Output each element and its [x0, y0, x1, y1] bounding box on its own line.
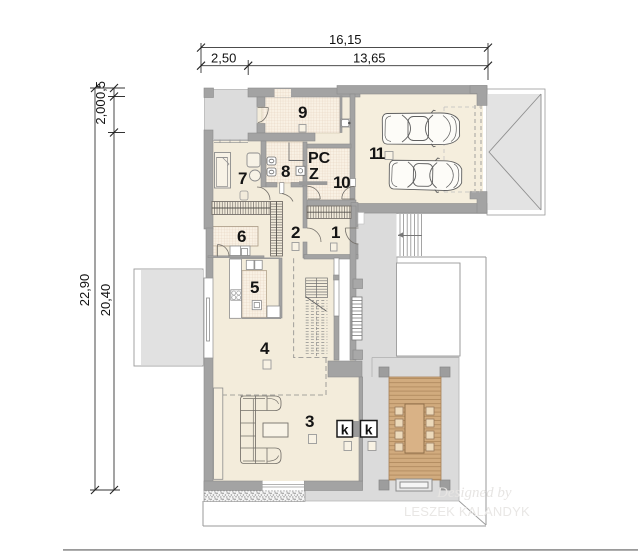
svg-text:k: k — [365, 422, 373, 438]
svg-text:3: 3 — [305, 412, 314, 431]
svg-text:10: 10 — [333, 173, 350, 192]
svg-text:2: 2 — [291, 223, 300, 242]
svg-text:Z: Z — [309, 166, 319, 183]
svg-text:1: 1 — [331, 223, 340, 242]
svg-text:2,50: 2,50 — [211, 51, 236, 66]
svg-text:16,15: 16,15 — [329, 32, 362, 47]
svg-text:13,65: 13,65 — [353, 51, 386, 66]
svg-text:4: 4 — [260, 339, 270, 358]
svg-text:9: 9 — [298, 103, 307, 122]
svg-text:22,90: 22,90 — [77, 274, 92, 307]
svg-text:LESZEK KALANDYK: LESZEK KALANDYK — [404, 504, 530, 519]
svg-text:5: 5 — [250, 278, 259, 297]
svg-text:PC: PC — [308, 150, 331, 167]
svg-text:2,00: 2,00 — [93, 99, 108, 124]
svg-text:Designed by: Designed by — [436, 485, 512, 501]
svg-text:8: 8 — [281, 162, 290, 181]
svg-text:7: 7 — [238, 169, 247, 188]
svg-text:6: 6 — [237, 227, 246, 246]
svg-text:0,5: 0,5 — [93, 81, 108, 99]
svg-text:k: k — [341, 422, 349, 438]
svg-text:11: 11 — [369, 144, 385, 163]
svg-text:20,40: 20,40 — [98, 284, 113, 317]
